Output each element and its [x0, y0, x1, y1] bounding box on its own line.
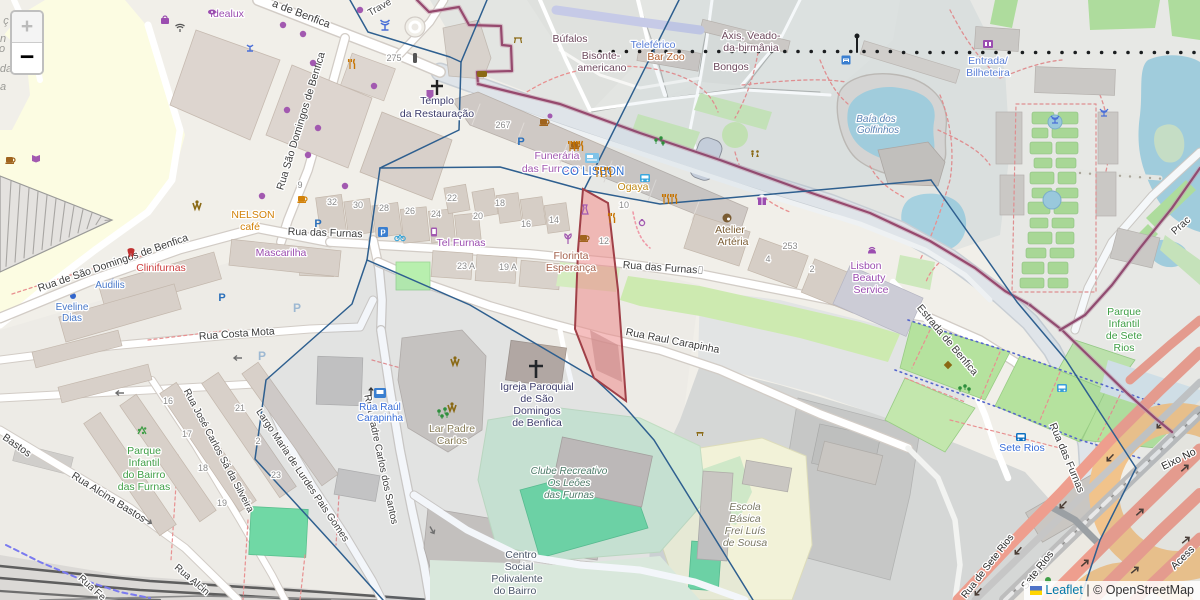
- svg-text:NELSON: NELSON: [231, 209, 274, 221]
- svg-text:23 A: 23 A: [457, 261, 475, 271]
- svg-text:Infantil: Infantil: [129, 457, 160, 469]
- svg-text:Idealux: Idealux: [210, 8, 245, 20]
- svg-text:Lar Padre: Lar Padre: [429, 423, 475, 435]
- svg-text:Frei Luís: Frei Luís: [725, 525, 767, 537]
- svg-text:Búfalos: Búfalos: [552, 33, 587, 45]
- svg-text:18: 18: [495, 198, 505, 208]
- svg-text:Service: Service: [853, 284, 888, 296]
- svg-text:Mascarilha: Mascarilha: [256, 247, 307, 259]
- svg-text:Bilheteira: Bilheteira: [966, 67, 1010, 79]
- svg-text:16: 16: [163, 396, 173, 406]
- svg-text:14: 14: [549, 215, 559, 225]
- svg-text:Polivalente: Polivalente: [491, 573, 543, 585]
- svg-text:do Bairro: do Bairro: [494, 585, 537, 597]
- svg-text:Sete Rios: Sete Rios: [999, 442, 1045, 454]
- svg-text:Bisonte-: Bisonte-: [582, 50, 621, 62]
- svg-text:32: 32: [327, 197, 337, 207]
- svg-text:Carapinha: Carapinha: [357, 413, 404, 424]
- svg-text:Bongos: Bongos: [713, 61, 749, 73]
- svg-text:americano: americano: [577, 62, 626, 74]
- svg-text:P: P: [380, 229, 386, 238]
- svg-text:12: 12: [599, 236, 609, 246]
- svg-text:24: 24: [431, 209, 441, 219]
- svg-text:Básica: Básica: [729, 513, 761, 525]
- svg-text:Funerária: Funerária: [535, 150, 580, 162]
- svg-text:Clinifurnas: Clinifurnas: [136, 262, 186, 274]
- svg-text:Eveline: Eveline: [56, 302, 89, 313]
- svg-text:das Furnas: das Furnas: [544, 490, 594, 501]
- svg-text:de Sete: de Sete: [1106, 330, 1142, 342]
- svg-text:Rua Raúl: Rua Raúl: [359, 402, 401, 413]
- svg-text:Atelier: Atelier: [715, 224, 745, 236]
- svg-text:Audilis: Audilis: [95, 280, 124, 291]
- svg-text:Áxis, Veado-: Áxis, Veado-: [722, 29, 781, 42]
- svg-text:o: o: [0, 43, 5, 55]
- svg-text:Centro: Centro: [505, 549, 537, 561]
- svg-text:18: 18: [198, 463, 208, 473]
- svg-text:Ogaya: Ogaya: [618, 181, 649, 193]
- svg-text:P: P: [258, 349, 266, 363]
- svg-text:Baía dos: Baía dos: [856, 114, 895, 125]
- svg-text:ç: ç: [3, 15, 9, 27]
- svg-text:Tel Furnas: Tel Furnas: [436, 237, 485, 249]
- svg-text:Bar Zoo: Bar Zoo: [647, 51, 685, 63]
- svg-text:Golfinhos: Golfinhos: [857, 125, 899, 136]
- svg-text:P: P: [517, 136, 524, 148]
- svg-text:16: 16: [521, 219, 531, 229]
- svg-text:Escola: Escola: [729, 501, 761, 513]
- svg-text:253: 253: [782, 241, 797, 251]
- svg-text:23: 23: [271, 470, 281, 480]
- svg-text:4: 4: [765, 254, 770, 264]
- svg-text:CO LISBON: CO LISBON: [562, 166, 625, 178]
- svg-text:do Bairro: do Bairro: [123, 469, 166, 481]
- svg-text:Os Leões: Os Leões: [548, 478, 591, 489]
- svg-text:Infantil: Infantil: [1109, 318, 1140, 330]
- svg-text:a: a: [0, 81, 6, 93]
- svg-text:19 A: 19 A: [499, 262, 517, 272]
- svg-text:Esperança: Esperança: [546, 262, 596, 274]
- svg-text:19: 19: [217, 498, 227, 508]
- svg-text:Clube Recreativo: Clube Recreativo: [531, 466, 608, 477]
- svg-text:26: 26: [405, 206, 415, 216]
- svg-text:Parque: Parque: [127, 445, 161, 457]
- svg-text:da Restauração: da Restauração: [400, 108, 474, 120]
- svg-text:17: 17: [182, 429, 192, 439]
- svg-text:Domingos: Domingos: [513, 405, 560, 417]
- svg-text:de São: de São: [520, 393, 553, 405]
- svg-text:Parque: Parque: [1107, 306, 1141, 318]
- svg-text:Entrada/: Entrada/: [968, 55, 1008, 67]
- svg-text:Igreja Paroquial: Igreja Paroquial: [500, 381, 574, 393]
- svg-text:Artéria: Artéria: [718, 236, 749, 248]
- svg-text:275: 275: [386, 53, 401, 63]
- svg-text:café: café: [240, 221, 260, 233]
- svg-text:de Benfica: de Benfica: [512, 417, 562, 429]
- svg-text:22: 22: [447, 193, 457, 203]
- svg-text:Florinta: Florinta: [553, 250, 588, 262]
- svg-text:30: 30: [353, 200, 363, 210]
- svg-text:21: 21: [235, 403, 245, 413]
- svg-text:Templo: Templo: [420, 95, 454, 107]
- svg-text:Carlos: Carlos: [437, 435, 467, 447]
- svg-text:das Furnas: das Furnas: [118, 481, 171, 493]
- svg-text:20: 20: [473, 211, 483, 221]
- svg-text:9: 9: [297, 180, 302, 190]
- svg-text:Rios: Rios: [1113, 342, 1134, 354]
- svg-text:2: 2: [809, 264, 814, 274]
- svg-text:Social: Social: [505, 561, 534, 573]
- svg-text:2: 2: [255, 436, 260, 446]
- svg-text:da-birmânia: da-birmânia: [723, 42, 779, 54]
- svg-text:P: P: [218, 292, 225, 304]
- svg-text:28: 28: [379, 203, 389, 213]
- svg-text:Teleférico: Teleférico: [631, 39, 676, 51]
- svg-text:Lisbon: Lisbon: [851, 260, 882, 272]
- svg-text:10: 10: [619, 200, 629, 210]
- svg-text:Dias: Dias: [62, 313, 82, 324]
- svg-text:de Sousa: de Sousa: [723, 537, 768, 549]
- svg-text:P: P: [314, 218, 321, 230]
- svg-text:267: 267: [495, 120, 510, 130]
- svg-text:Beauty: Beauty: [853, 272, 886, 284]
- svg-text:P: P: [293, 301, 301, 315]
